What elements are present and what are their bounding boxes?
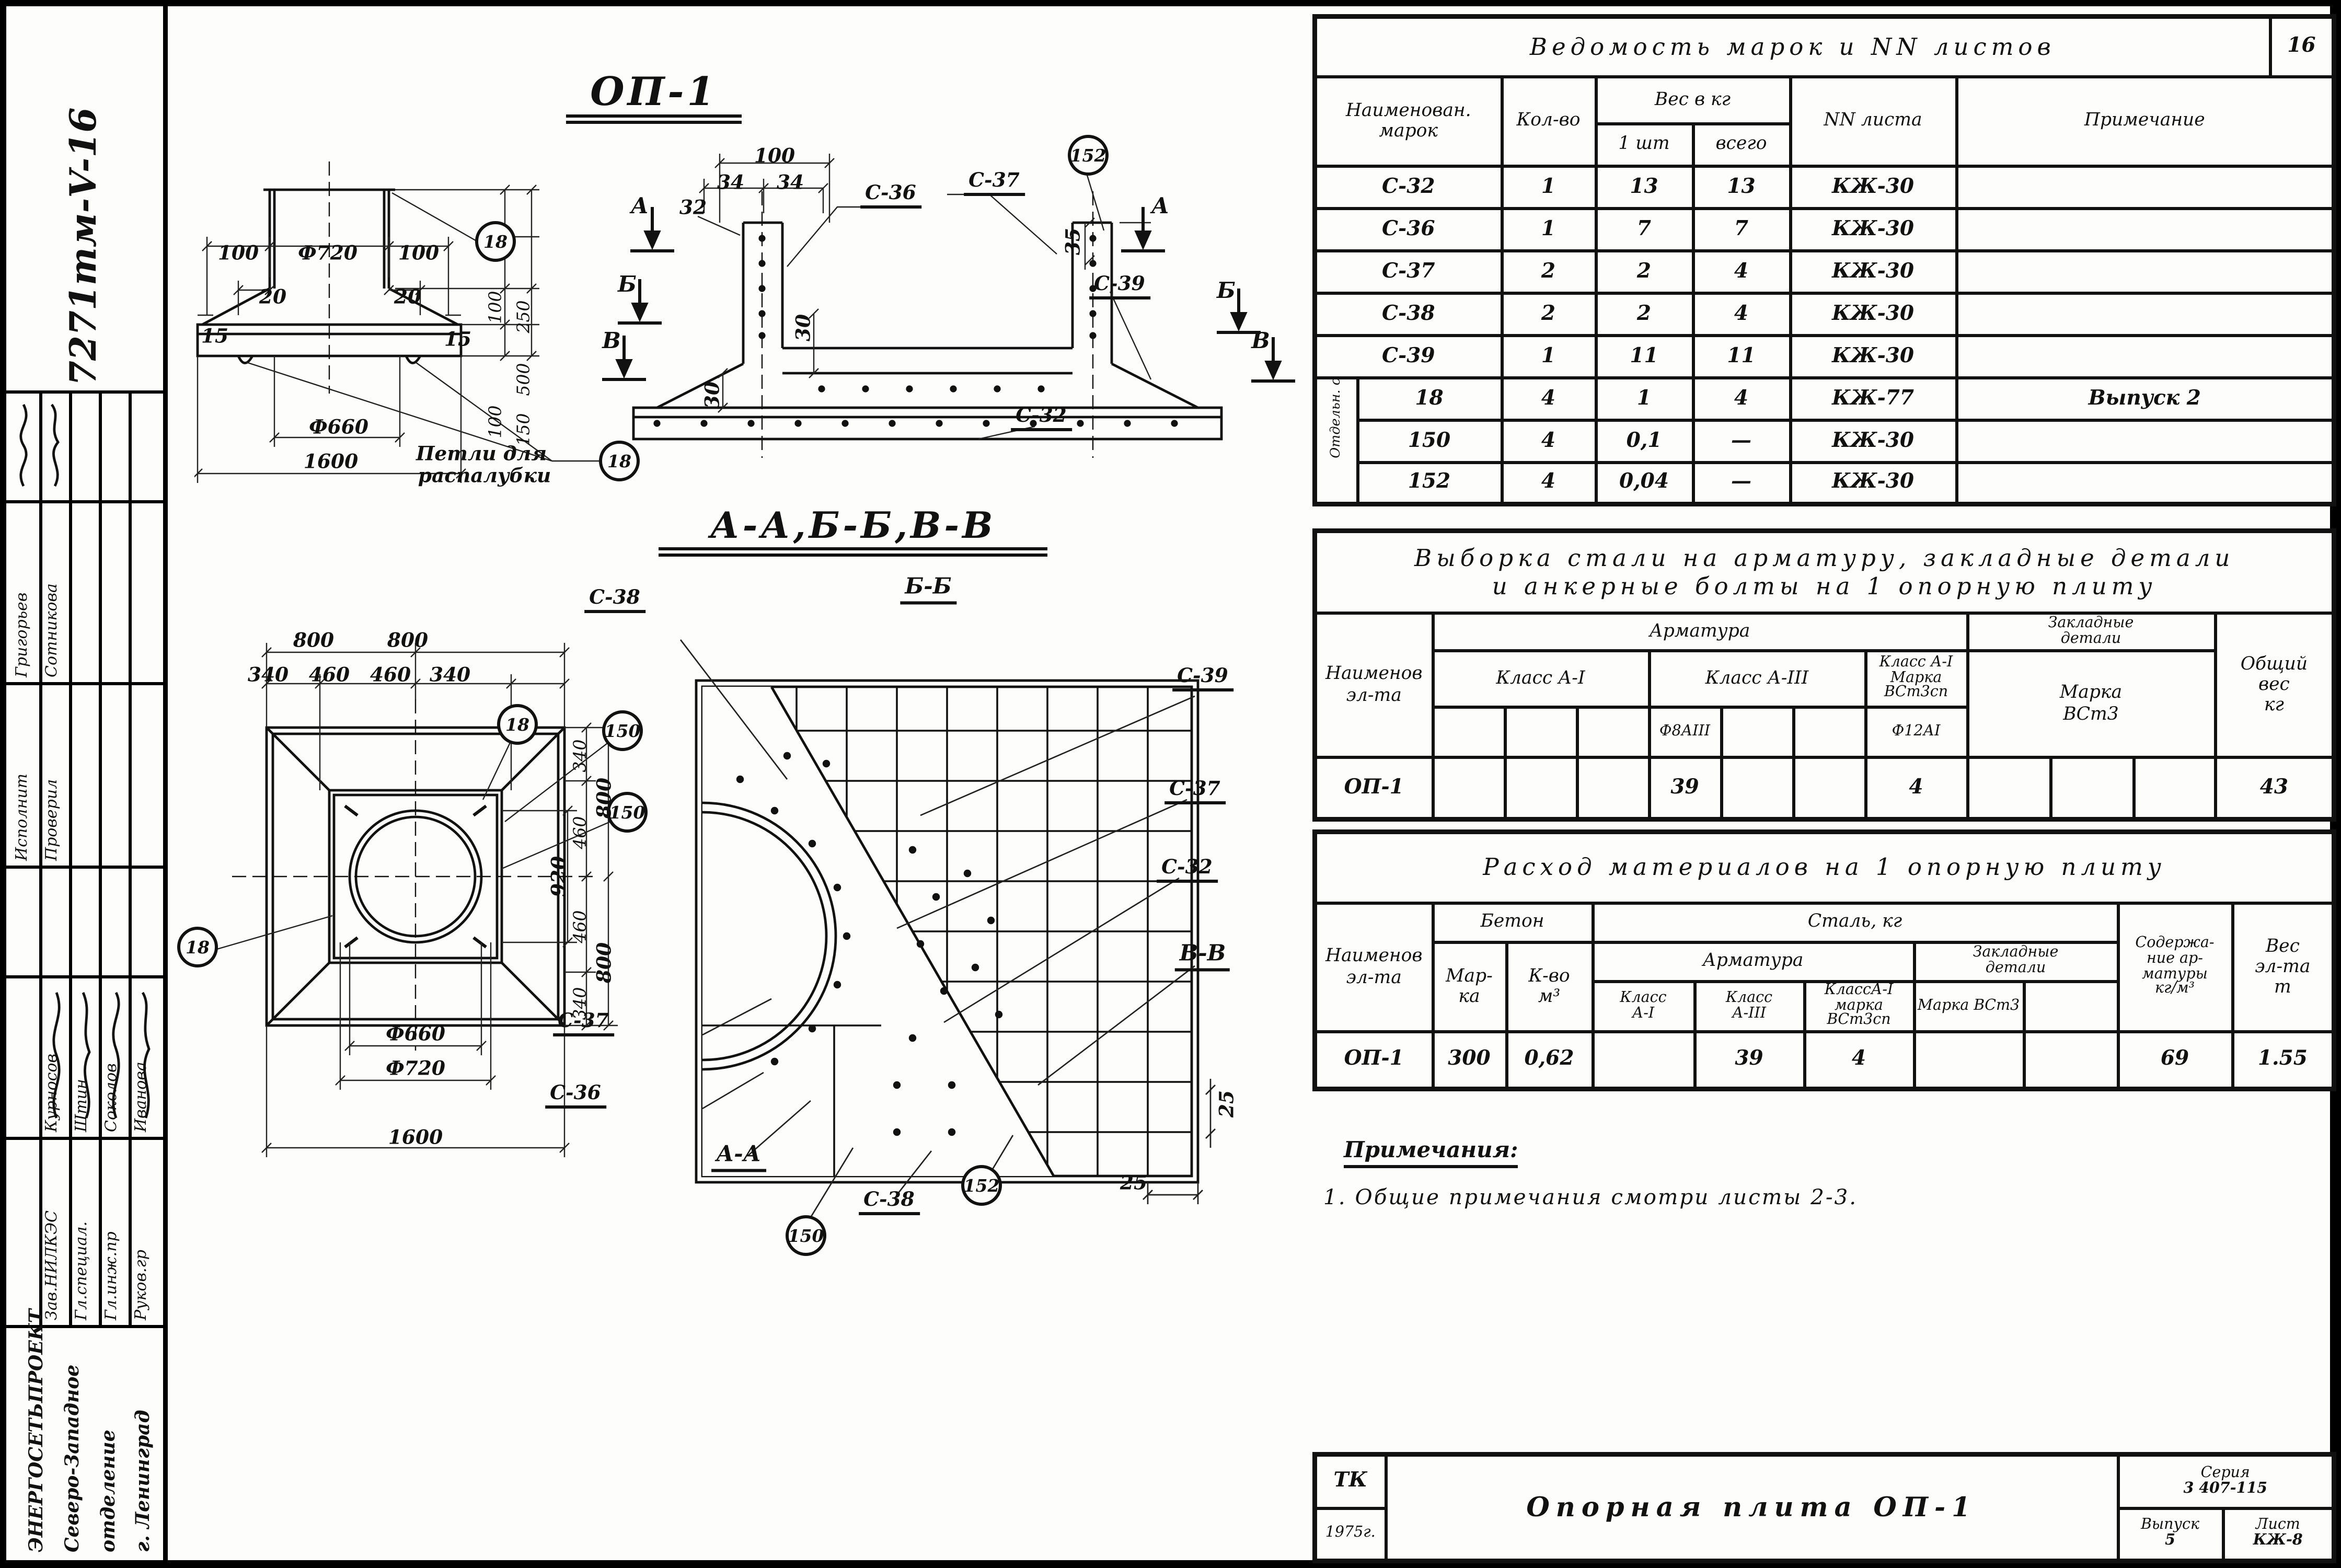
piece-label: С-37	[553, 1008, 614, 1036]
sub-cell	[1505, 707, 1577, 757]
cell: 7	[1596, 208, 1693, 250]
hdr-line: Наименов	[1319, 946, 1429, 967]
dim-label: Ф660	[309, 415, 368, 439]
hdr-line: кг/м³	[2121, 982, 2229, 998]
cell: КЖ-30	[1790, 335, 1956, 377]
dim-label: 25	[1120, 1171, 1147, 1194]
steel-table: Выборка стали на арматуру, закладные дет…	[1312, 528, 2336, 822]
hdr-line: детали	[1917, 961, 2115, 977]
hdr-line: Содержа-	[2121, 936, 2229, 951]
table-title: Выборка стали на арматуру, закладные дет…	[1315, 531, 2334, 613]
piece-label: С-38	[859, 1187, 919, 1215]
cell: 0,62	[1506, 1031, 1593, 1089]
stamp-name: Григорьев	[14, 502, 31, 677]
callout-18: 18	[177, 927, 218, 967]
cell: 0,1	[1596, 420, 1693, 462]
notes-title: Примечания:	[1344, 1138, 1518, 1168]
cell: КЖ-30	[1790, 166, 1956, 208]
dim-label: 32	[679, 195, 707, 219]
cell: 11	[1596, 335, 1693, 377]
hdr-line: КлассА-I	[1807, 983, 1911, 998]
cell: 1	[1502, 208, 1596, 250]
series-label: Серия	[2121, 1466, 2331, 1481]
group-header: Арматура	[1593, 942, 1914, 981]
class-header: Класс А-I Марка ВСт3сп	[1865, 650, 1967, 707]
col-header: Вес эл-та т	[2232, 903, 2334, 1031]
cell: КЖ-30	[1790, 208, 1956, 250]
cell	[1956, 166, 2334, 208]
dim-label: 100	[754, 144, 795, 167]
hdr-line: матуры	[2121, 967, 2229, 983]
stamp-name: Курносов	[44, 978, 61, 1132]
hdr-line: эл-та	[2235, 956, 2331, 977]
cell: ОП-1	[1315, 757, 1433, 820]
cell: КЖ-30	[1790, 250, 1956, 293]
col-header: Примечание	[1956, 76, 2334, 166]
col-header: Наименов эл-та	[1315, 613, 1433, 757]
cell: КЖ-30	[1790, 420, 1956, 462]
col-header: Мар- ка	[1433, 942, 1506, 1031]
dim-label: 15	[444, 327, 471, 351]
dim-label: 460	[570, 816, 591, 849]
note-text: Петли для	[416, 442, 547, 465]
stamp-role: Руков.гр	[133, 1140, 151, 1320]
hdr-line: Вес	[2235, 936, 2331, 956]
section-mark-V: В	[1251, 329, 1270, 354]
org-line: Северо-Западное	[61, 1320, 83, 1552]
dim-label: 34	[717, 170, 744, 194]
dim-label: 1600	[388, 1125, 443, 1149]
cell: С-37	[1315, 250, 1502, 293]
note-text: распалубки	[418, 464, 551, 487]
stamp-divider	[99, 390, 102, 1325]
dim-label: 20	[394, 285, 421, 308]
org-line: г. Ленинград	[132, 1320, 154, 1552]
hdr-line: К-во	[1509, 965, 1589, 986]
dim-label: 100	[486, 291, 506, 324]
cell	[1956, 250, 2334, 293]
stamp-role: Зав.НИЛКЭС	[44, 1140, 61, 1320]
year-cell: 1975г.	[1315, 1508, 1386, 1561]
col-header: Наименов эл-та	[1315, 903, 1433, 1031]
dim-label: Ф720	[298, 241, 358, 264]
cell: 150	[1357, 420, 1502, 462]
cell: С-39	[1315, 335, 1502, 377]
cell: 1	[1502, 166, 1596, 208]
bigplan-drawing	[677, 630, 1226, 1226]
cell	[1967, 757, 2050, 820]
cell: 300	[1433, 1031, 1506, 1089]
cell: 2	[1596, 250, 1693, 293]
cell: 152	[1357, 462, 1502, 504]
cell	[1793, 757, 1865, 820]
col-header: Наименован. марок	[1315, 76, 1502, 166]
hdr-line: эл-та	[1319, 967, 1429, 988]
title-block: ТК Опорная плита ОП-1 Серия 3 407-115 19…	[1312, 1452, 2336, 1563]
cell: 39	[1649, 757, 1721, 820]
hdr-line: Мар-	[1436, 965, 1503, 986]
dim-label: 100	[218, 241, 259, 264]
cell	[1914, 1031, 2024, 1089]
marks-table: Ведомость марок и NN листов 16 Наименова…	[1312, 14, 2336, 506]
class-header: Класс А-I	[1433, 650, 1649, 707]
org-line: ЭНЕРГОСЕТЬПРОЕКТ	[25, 1320, 47, 1552]
title-line: Выборка стали на арматуру, закладные дет…	[1319, 544, 2330, 572]
section-mark-V: В	[602, 329, 621, 354]
piece-label: С-36	[545, 1080, 606, 1109]
table-title: Расход материалов на 1 опорную плиту	[1315, 832, 2334, 903]
dim-label: 800	[592, 942, 616, 983]
hdr-line: ВСт3	[1970, 704, 2212, 724]
cell: 1	[1596, 377, 1693, 420]
title-line: и анкерные болты на 1 опорную плиту	[1319, 572, 2330, 600]
signature-icon	[42, 398, 67, 492]
col-header: Содержа- ние ар- матуры кг/м³	[2118, 903, 2232, 1031]
group-header: Бетон	[1433, 903, 1593, 942]
class-header: Марка ВСт3	[1914, 981, 2024, 1031]
hdr-line: Класс	[1698, 990, 1801, 1006]
col-header: Вес в кг	[1596, 76, 1790, 123]
dim-label: 34	[777, 170, 804, 194]
dim-label: Ф720	[386, 1056, 445, 1080]
col-header: Кол-во	[1502, 76, 1596, 166]
hdr-line: Класс А-I	[1869, 655, 1964, 671]
dim-label: 250	[514, 301, 534, 333]
cell: 2	[1502, 293, 1596, 335]
cell: КЖ-30	[1790, 293, 1956, 335]
class-header: Класс А-I	[1593, 981, 1694, 1031]
piece-label: С-37	[964, 168, 1024, 196]
stamp-name: Штин	[74, 978, 91, 1132]
stamp-role: Гл.специал.	[74, 1140, 91, 1320]
cell: 39	[1694, 1031, 1804, 1089]
cell	[1956, 462, 2334, 504]
embed-mark-header: Марка ВСт3	[1967, 650, 2215, 757]
hdr-line: Закладные	[1917, 946, 2115, 961]
sheet-scale: 7271тм-V-16 Григорьев Сотникова Исполнит…	[0, 0, 2341, 1568]
piece-label: С-38	[584, 585, 645, 613]
issue-label: Выпуск	[2121, 1518, 2220, 1534]
series-value: 3 407-115	[2121, 1481, 2331, 1497]
stamp-divider	[129, 390, 132, 1325]
cell: КЖ-30	[1790, 462, 1956, 504]
section-label-AA: А-А	[711, 1143, 766, 1172]
drawing-title: Опорная плита ОП-1	[1386, 1455, 2118, 1561]
hdr-line: ВСт3сп	[1807, 1013, 1911, 1029]
cell	[1505, 757, 1577, 820]
piece-label: С-39	[1089, 271, 1150, 299]
dim-label: 30	[791, 314, 815, 341]
cell: 13	[1596, 166, 1693, 208]
callout-18: 18	[497, 704, 538, 745]
dim-label: 460	[370, 663, 411, 686]
section-mark-arrows	[602, 207, 1295, 381]
dim-label: 340	[248, 663, 289, 686]
cell: 4	[1693, 377, 1790, 420]
cell: —	[1693, 462, 1790, 504]
sub-header: Ф8АIII	[1649, 707, 1721, 757]
col-header: 1 шт	[1596, 123, 1693, 166]
group-header: Закладные детали	[1967, 613, 2215, 650]
hdr-line: вес	[2218, 674, 2331, 695]
section-mark-B: Б	[618, 273, 637, 298]
hdr-line: Класс	[1596, 990, 1691, 1006]
cell: 13	[1693, 166, 1790, 208]
stamp-role: Исполнит	[14, 685, 31, 861]
dim-label: 500	[514, 363, 534, 396]
dim-label: 25	[1215, 1090, 1238, 1117]
col-header: Общий вес кг	[2215, 613, 2334, 757]
stamp-name: Соколов	[103, 978, 121, 1132]
hdr-line: Марка	[1869, 671, 1964, 686]
cell	[1721, 757, 1793, 820]
hdr-line: т	[2235, 977, 2331, 998]
notes-item: 1. Общие примечания смотри листы 2-3.	[1323, 1185, 1858, 1210]
rebar-dots	[653, 235, 1178, 426]
cell	[1956, 420, 2334, 462]
sub-cell	[1577, 707, 1649, 757]
hdr-line: Наименов	[1319, 664, 1429, 685]
hdr-line: ВСт3сп	[1869, 686, 1964, 701]
hdr-line: кг	[2218, 695, 2331, 716]
cell: 4	[1502, 462, 1596, 504]
cell: 4	[1865, 757, 1967, 820]
dimension-lines	[698, 154, 1151, 439]
cell	[1956, 208, 2334, 250]
dim-label: 340	[430, 663, 470, 686]
hdr-line: Марка	[1970, 683, 2212, 704]
callout-150: 150	[786, 1215, 826, 1256]
section-label-VV: В-В	[1175, 942, 1230, 972]
cell: 18	[1357, 377, 1502, 420]
sub-cell	[1721, 707, 1793, 757]
hdr-line: м³	[1509, 986, 1589, 1007]
materials-table: Расход материалов на 1 опорную плиту Наи…	[1312, 829, 2336, 1091]
stamp-role: Гл.инж.пр	[103, 1140, 121, 1320]
hdr-line: Общий	[2218, 653, 2331, 674]
cell	[1956, 335, 2334, 377]
col-header: NN листа	[1790, 76, 1956, 166]
callout-150: 150	[602, 710, 643, 751]
callout-152: 152	[1068, 135, 1109, 176]
cell: Выпуск 2	[1956, 377, 2334, 420]
piece-label: С-37	[1164, 776, 1225, 804]
cell: 1	[1502, 335, 1596, 377]
dim-label: 1600	[304, 449, 358, 473]
hdr-line: А-III	[1698, 1006, 1801, 1022]
hdr-line: эл-та	[1319, 685, 1429, 706]
cell: —	[1693, 420, 1790, 462]
stamp-sidebar: 7271тм-V-16 Григорьев Сотникова Исполнит…	[6, 6, 168, 1560]
group-label-cell: Отдельн. стержни	[1315, 377, 1357, 504]
cell: 1.55	[2232, 1031, 2334, 1089]
dim-label: 800	[293, 628, 334, 652]
cell: 7	[1693, 208, 1790, 250]
dim-label: 100	[398, 241, 439, 264]
col-header: всего	[1693, 123, 1790, 166]
dim-label: 460	[570, 910, 591, 943]
stamp-divider	[39, 390, 42, 1325]
cell: 43	[2215, 757, 2334, 820]
cell: КЖ-77	[1790, 377, 1956, 420]
cell: 4	[1693, 293, 1790, 335]
dim-label: 30	[700, 382, 724, 409]
tk-cell: ТК	[1315, 1455, 1386, 1508]
dim-label: Ф660	[386, 1022, 445, 1045]
issue-value: 5	[2121, 1534, 2220, 1550]
drawing-sheet: 7271тм-V-16 Григорьев Сотникова Исполнит…	[2, 2, 2335, 1565]
cell	[2024, 1031, 2118, 1089]
hdr-line: ка	[1436, 986, 1503, 1007]
sheet-cell: Лист КЖ-8	[2223, 1508, 2334, 1561]
group-header: Сталь, кг	[1593, 903, 2118, 942]
sub-cell	[1433, 707, 1505, 757]
callout-18: 18	[475, 221, 516, 262]
cell	[1593, 1031, 1694, 1089]
cell: 4	[1502, 377, 1596, 420]
cell	[1956, 293, 2334, 335]
section-mark-A: А	[1151, 194, 1169, 220]
stamp-divider	[69, 390, 72, 1325]
dim-label: 800	[387, 628, 428, 652]
piece-label: С-39	[1172, 663, 1233, 691]
stamp-name: Сотникова	[44, 502, 61, 677]
cell: 4	[1693, 250, 1790, 293]
dim-label: 340	[570, 740, 591, 773]
dim-label: 15	[201, 324, 228, 348]
hdr-line: ние ар-	[2121, 951, 2229, 967]
piece-label: С-32	[1157, 855, 1217, 883]
document-number: 7271тм-V-16	[63, 33, 105, 386]
dim-label: 20	[259, 285, 286, 308]
org-line: отделение	[97, 1320, 119, 1552]
cell	[2134, 757, 2215, 820]
cell: С-36	[1315, 208, 1502, 250]
cell: 69	[2118, 1031, 2232, 1089]
dim-label: 800	[592, 778, 616, 818]
hdr-line: А-I	[1596, 1006, 1691, 1022]
view-title: ОП-1	[566, 69, 742, 124]
class-header: КлассА-I марка ВСт3сп	[1804, 981, 1914, 1031]
centerlines	[232, 699, 599, 1051]
hdr-line: детали	[1970, 631, 2212, 647]
stamp-role: Проверил	[44, 685, 61, 861]
sheet-number: 16	[2270, 17, 2334, 76]
group-header: Арматура	[1433, 613, 1967, 650]
cell: 4	[1502, 420, 1596, 462]
dim-label: 35	[1061, 228, 1085, 255]
hdr-line: марка	[1807, 998, 1911, 1014]
cell: 2	[1502, 250, 1596, 293]
cell: 4	[1804, 1031, 1914, 1089]
issue-cell: Выпуск 5	[2118, 1508, 2223, 1561]
section-mark-A: А	[631, 194, 649, 220]
cell: С-32	[1315, 166, 1502, 208]
cell: 11	[1693, 335, 1790, 377]
class-header: Класс А-III	[1649, 650, 1865, 707]
sheet-label: Лист	[2226, 1518, 2331, 1534]
cell: С-38	[1315, 293, 1502, 335]
piece-label: С-36	[860, 180, 921, 209]
dim-label: 460	[309, 663, 350, 686]
dim-label: 100	[486, 406, 506, 439]
cell: 0,04	[1596, 462, 1693, 504]
cell	[2050, 757, 2134, 820]
cell	[1577, 757, 1649, 820]
stamp-divider	[6, 390, 163, 394]
series-cell: Серия 3 407-115	[2118, 1455, 2334, 1508]
hdr-line: Закладные	[1970, 616, 2212, 631]
table-title: Ведомость марок и NN листов	[1315, 17, 2270, 76]
signature-icon	[11, 398, 36, 492]
sub-header: Ф12АI	[1865, 707, 1967, 757]
stamp-divider	[6, 866, 163, 869]
piece-label: С-32	[1011, 403, 1071, 431]
section-label-BB: Б-Б	[900, 575, 956, 605]
cell: 2	[1596, 293, 1693, 335]
sheet-value: КЖ-8	[2226, 1534, 2331, 1550]
cell	[1433, 757, 1505, 820]
group-header: Закладные детали	[1914, 942, 2118, 981]
group-label: Отдельн. стержни	[1329, 423, 1344, 458]
class-header: Класс А-III	[1694, 981, 1804, 1031]
col-header: К-во м³	[1506, 942, 1593, 1031]
section-mark-B: Б	[1217, 279, 1236, 304]
sub-cell	[1793, 707, 1865, 757]
cell: ОП-1	[1315, 1031, 1433, 1089]
sub-cell	[2024, 981, 2118, 1031]
callout-152: 152	[961, 1165, 1002, 1206]
dim-label: 920	[547, 856, 570, 897]
stamp-name: Иванова	[133, 978, 151, 1132]
